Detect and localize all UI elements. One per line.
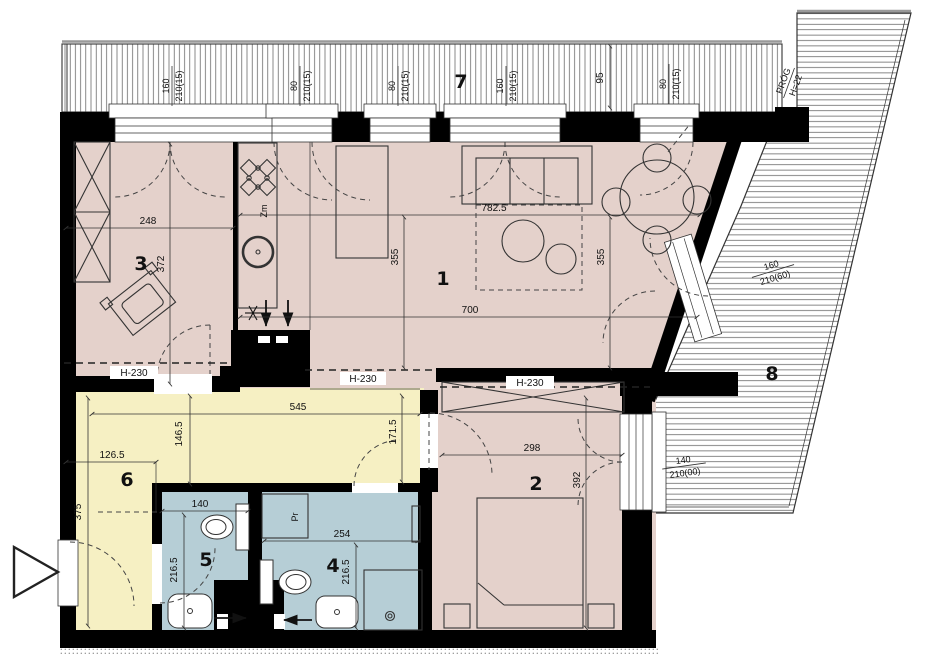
window-w1 [109, 104, 281, 142]
window-w4 [444, 104, 566, 142]
vent-slot [217, 614, 228, 629]
dim-bedroom-width: 298 [524, 443, 541, 454]
h230-label-living: H-230 [349, 374, 377, 385]
bath-sink [316, 596, 358, 628]
dim-wc-height: 216.5 [169, 557, 180, 582]
room-number-terrace: 8 [765, 363, 778, 385]
vent-slot [276, 336, 288, 343]
room-number-living: 1 [436, 268, 449, 290]
svg-text:140: 140 [675, 454, 691, 466]
svg-text:210(15): 210(15) [302, 70, 312, 101]
floor-plan-page: H-230 H-230 H-230 248 372 782.5 355 355 … [0, 0, 937, 669]
dim-living-top: 782.5 [481, 203, 506, 214]
svg-text:80: 80 [658, 79, 668, 89]
bathroom-door-opening [352, 483, 398, 493]
dim-room3-height: 372 [156, 255, 167, 272]
room-number-wc: 5 [199, 549, 212, 571]
window-w5 [634, 104, 699, 142]
svg-text:80: 80 [289, 81, 299, 91]
vent-slot [258, 336, 270, 343]
wc-sink [168, 594, 212, 628]
dim-hall-door: 171.5 [388, 419, 399, 444]
room-number-hall: 6 [120, 469, 133, 491]
dim-living-left: 355 [390, 248, 401, 265]
room-number-room3: 3 [134, 253, 147, 275]
dim-hall-mid: 146.5 [174, 421, 185, 446]
dim-balcony-pier: 95 [595, 72, 606, 84]
h230-label-room3: H-230 [120, 368, 148, 379]
dim-hall-left: 126.5 [99, 450, 124, 461]
window-w2 [266, 104, 338, 142]
svg-text:160: 160 [161, 78, 171, 93]
dim-room3-width: 248 [140, 216, 157, 227]
dim-bath-width: 254 [334, 529, 351, 540]
dim-hall-height: 375 [73, 503, 84, 520]
room3-door-opening [154, 374, 212, 394]
room-number-balcony: 7 [454, 71, 467, 93]
window-w3 [364, 104, 436, 142]
insulation-strip [60, 648, 658, 656]
svg-text:210(15): 210(15) [671, 68, 681, 99]
dim-wc-width: 140 [192, 499, 209, 510]
svg-text:210(15): 210(15) [508, 70, 518, 101]
dim-living-mid: 700 [462, 305, 479, 316]
entrance-arrow [14, 547, 58, 597]
vent-slot [274, 614, 285, 629]
dim-living-right: 355 [596, 248, 607, 265]
svg-text:80: 80 [387, 81, 397, 91]
dim-bedroom-height: 392 [572, 471, 583, 488]
kitchen-partition [233, 142, 238, 330]
room-number-bathroom: 4 [326, 555, 339, 577]
h230-label-bedroom: H-230 [516, 378, 544, 389]
svg-text:160: 160 [495, 78, 505, 93]
kitchen-sink-label: Zm [259, 205, 269, 218]
svg-text:210(15): 210(15) [174, 70, 184, 101]
wc-door-opening [152, 544, 162, 604]
dim-hall-top: 545 [290, 402, 307, 413]
room-number-bedroom: 2 [529, 473, 542, 495]
dim-bath-height: 216.5 [341, 559, 352, 584]
bedroom-window [620, 412, 666, 512]
entrance-door-opening [58, 540, 78, 606]
svg-text:210(15): 210(15) [400, 70, 410, 101]
washer-label: Pr [290, 512, 300, 521]
floor-plan-drawing: H-230 H-230 H-230 248 372 782.5 355 355 … [0, 0, 937, 669]
